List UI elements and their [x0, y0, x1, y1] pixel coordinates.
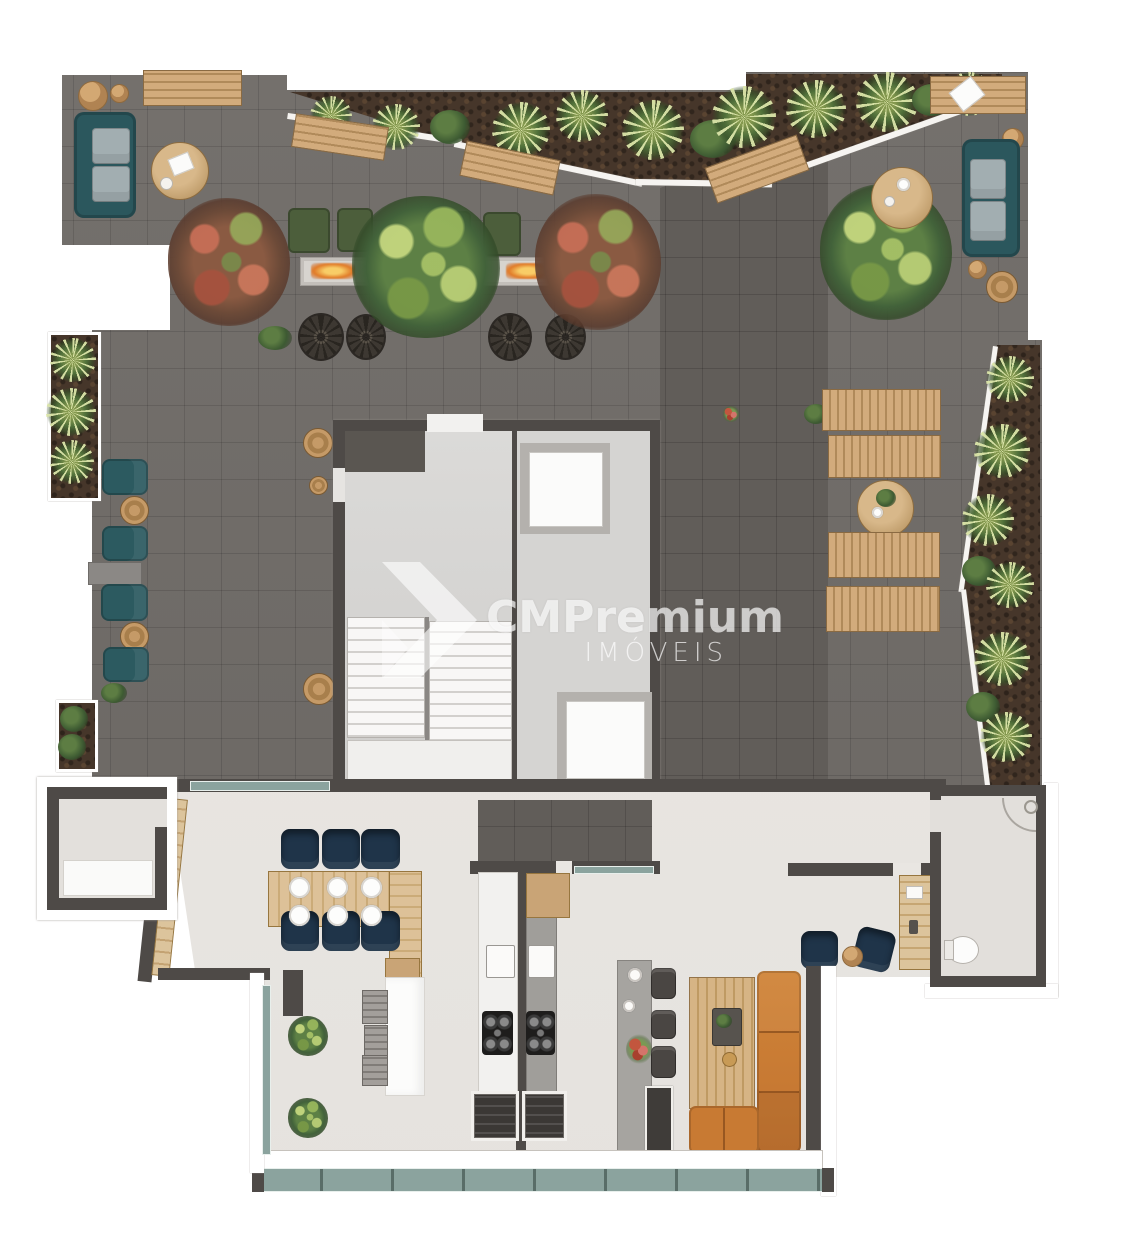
bar-stool [362, 990, 388, 1024]
potted-plant [288, 1098, 328, 1138]
flower-arrangement [626, 1034, 652, 1064]
plate-setting [289, 905, 310, 926]
watermark-brand: CMPremium [486, 592, 784, 643]
sun-lounger [828, 532, 940, 578]
core-door-gap [427, 414, 483, 432]
door-gap [155, 799, 167, 827]
barbecue-grill [522, 1091, 567, 1141]
floor-plan: CMPremium IMÓVEIS [0, 0, 1121, 1256]
sink [528, 945, 555, 978]
core-door-gap [333, 468, 345, 502]
plate-setting [872, 507, 883, 518]
wood-stool [303, 673, 335, 705]
palm-plant [974, 632, 1030, 686]
teal-lounge-chair [102, 459, 148, 495]
ottoman-pouf [78, 81, 108, 111]
sun-lounger [822, 389, 941, 431]
pendant-lamp [628, 968, 642, 982]
teal-sofa [962, 139, 1020, 257]
bar-stool [364, 1025, 388, 1056]
potted-plant [716, 1014, 732, 1028]
wire-mesh-chair [488, 313, 532, 361]
palm-plant [974, 424, 1030, 478]
watermark: CMPremium IMÓVEIS [378, 560, 748, 680]
plate-setting [897, 178, 910, 191]
glass-window-band [252, 1168, 834, 1192]
round-side-table [857, 480, 914, 537]
kitchen-island [385, 977, 425, 1096]
green-fire-bench [288, 208, 330, 253]
wood-stool [303, 428, 333, 458]
teal-lounge-chair [103, 647, 149, 682]
sun-lounger [826, 586, 940, 632]
palm-plant [986, 562, 1034, 608]
kitchen-counter-white [478, 872, 518, 1095]
elevator-cab-interior [566, 701, 645, 779]
window-sill [263, 1150, 823, 1170]
watermark-tagline: IMÓVEIS [486, 638, 728, 668]
cooktop [526, 1011, 555, 1055]
shrub-plant [430, 110, 470, 144]
plate-setting [289, 877, 310, 898]
elevator-cab [557, 692, 652, 786]
plate-setting [327, 877, 348, 898]
ottoman-pouf [968, 260, 987, 279]
round-coffee-table [151, 142, 209, 200]
outer-wall-segment [821, 966, 836, 1196]
sofa-cushion [92, 166, 130, 202]
wood-bench [930, 76, 1026, 114]
orange-sectional-sofa [757, 971, 801, 1153]
door-gap [930, 800, 941, 832]
round-dining-table [871, 167, 933, 229]
wood-stool [986, 271, 1018, 303]
kettle [722, 1052, 737, 1067]
shrub-plant [101, 683, 127, 703]
sofa-seam [723, 1108, 725, 1152]
sofa-seam [759, 1031, 799, 1033]
palm-plant [856, 72, 918, 132]
plate-setting [361, 905, 382, 926]
sofa-seam [759, 1091, 799, 1093]
glass-window-band [262, 985, 271, 1155]
shrub-plant [60, 706, 88, 732]
lounge-wood-table [689, 977, 755, 1109]
teal-lounge-chair [102, 526, 148, 561]
storage-counter [63, 860, 153, 896]
table-cup [884, 196, 895, 207]
towel [949, 76, 986, 112]
counter-wood-block [526, 873, 570, 918]
plate-setting [361, 877, 382, 898]
orange-sectional-sofa [689, 1106, 759, 1154]
navy-dining-chair [322, 829, 360, 869]
toilet-tank [944, 940, 954, 960]
desk-phone [909, 920, 918, 934]
wall-stub [283, 970, 303, 1016]
shrub-plant [58, 734, 86, 760]
green-tree [352, 196, 500, 338]
palm-plant [986, 356, 1034, 402]
palm-plant [50, 440, 94, 484]
bar-chair [651, 968, 676, 999]
palm-plant [786, 80, 846, 138]
wood-side-table [120, 496, 149, 525]
navy-dining-chair [361, 829, 400, 869]
gray-planter-box [88, 562, 142, 585]
navy-dining-chair [281, 829, 319, 869]
elevator-cab [520, 443, 610, 534]
palm-plant [712, 86, 776, 148]
brand-logo-icon [382, 562, 482, 684]
bar-stool [362, 1055, 388, 1086]
barbecue-grill [471, 1091, 519, 1141]
table-cup [160, 177, 173, 190]
palm-plant [46, 388, 96, 436]
wood-stool [309, 476, 328, 495]
terrace-pocket [478, 800, 652, 863]
palm-plant [50, 338, 96, 382]
palm-plant [556, 90, 608, 142]
shrub-plant [258, 326, 292, 350]
potted-plant [288, 1016, 328, 1056]
wire-mesh-chair [298, 313, 344, 361]
cooktop [482, 1011, 513, 1055]
bar-chair [651, 1046, 676, 1078]
window-end-cap [822, 1168, 834, 1192]
stair-hall-shadow [345, 431, 425, 472]
palm-plant [962, 494, 1014, 546]
pendant-lamp [623, 1000, 635, 1012]
teal-lounge-chair [101, 584, 148, 621]
ottoman-pouf [842, 946, 863, 967]
plate-setting [327, 905, 348, 926]
navy-armchair [801, 931, 838, 969]
bar-cabinet [645, 1086, 673, 1154]
flowering-tree [535, 194, 661, 330]
potted-plant [876, 489, 896, 507]
flower-pot [722, 406, 740, 422]
bar-chair [651, 1010, 676, 1039]
flowering-tree [168, 198, 290, 326]
table-card [167, 152, 194, 177]
outer-wall-segment [1044, 783, 1058, 997]
sofa-cushion [970, 159, 1006, 199]
ottoman-pouf [110, 84, 129, 103]
sun-lounger [828, 435, 941, 478]
writing-desk [899, 875, 932, 970]
elevator-cab-interior [529, 452, 603, 527]
glass-window-band [574, 866, 654, 874]
fire-flame [311, 263, 355, 279]
sofa-cushion [92, 128, 130, 164]
palm-plant [980, 712, 1032, 762]
teal-sofa [74, 112, 136, 218]
sofa-cushion [970, 201, 1006, 241]
wood-bench [143, 70, 242, 106]
palm-plant [622, 100, 684, 160]
shower-drain [1024, 800, 1038, 814]
glass-door-band [190, 781, 330, 791]
sink [486, 945, 515, 978]
desk-lamp [906, 886, 923, 899]
